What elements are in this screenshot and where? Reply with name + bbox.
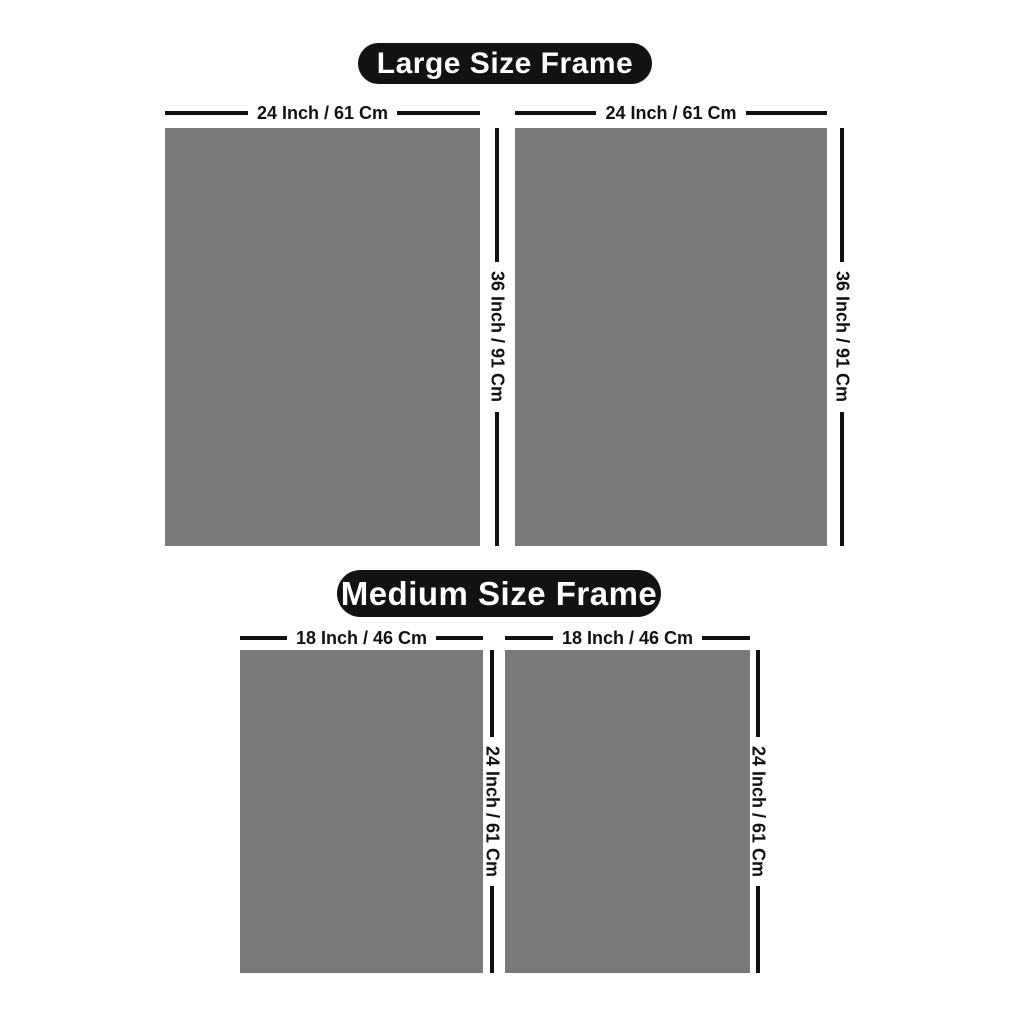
dimension-line-top <box>495 128 499 262</box>
medium-right-frame-width-label: 18 Inch / 46 Cm <box>562 628 693 649</box>
medium-right-frame-preview <box>505 650 750 973</box>
dimension-line-bottom <box>840 412 844 546</box>
dimension-line-top <box>840 128 844 262</box>
large-left-frame-width-dimension: 24 Inch / 61 Cm <box>165 101 480 125</box>
frame-size-chart: Large Size Frame 24 Inch / 61 Cm 24 Inch… <box>0 0 1024 1024</box>
dimension-line-right <box>702 636 750 640</box>
medium-left-frame-width-dimension: 18 Inch / 46 Cm <box>240 626 483 650</box>
dimension-line-left <box>515 111 596 115</box>
large-left-frame-preview <box>165 128 480 546</box>
medium-right-frame-height-label: 24 Inch / 61 Cm <box>748 746 769 877</box>
dimension-line-bottom <box>495 412 499 546</box>
large-right-frame-height-label: 36 Inch / 91 Cm <box>832 271 853 402</box>
large-left-frame-height-label: 36 Inch / 91 Cm <box>487 271 508 402</box>
large-right-frame-width-label: 24 Inch / 61 Cm <box>605 103 736 124</box>
dimension-line-left <box>505 636 553 640</box>
large-section-title-pill: Large Size Frame <box>358 43 652 84</box>
medium-right-frame-width-dimension: 18 Inch / 46 Cm <box>505 626 750 650</box>
large-section-title: Large Size Frame <box>377 47 633 81</box>
large-right-frame-width-dimension: 24 Inch / 61 Cm <box>515 101 827 125</box>
dimension-line-left <box>240 636 287 640</box>
dimension-line-top <box>490 650 494 737</box>
large-right-frame-height-dimension: 36 Inch / 91 Cm <box>829 128 855 546</box>
dimension-line-right <box>397 111 480 115</box>
dimension-line-right <box>436 636 483 640</box>
medium-left-frame-width-label: 18 Inch / 46 Cm <box>296 628 427 649</box>
medium-section-title: Medium Size Frame <box>341 575 658 613</box>
dimension-line-left <box>165 111 248 115</box>
dimension-line-top <box>756 650 760 737</box>
medium-left-frame-height-label: 24 Inch / 61 Cm <box>482 746 503 877</box>
dimension-line-bottom <box>756 886 760 973</box>
medium-section-title-pill: Medium Size Frame <box>337 570 661 617</box>
medium-left-frame-preview <box>240 650 483 973</box>
medium-left-frame-height-dimension: 24 Inch / 61 Cm <box>479 650 505 973</box>
dimension-line-bottom <box>490 886 494 973</box>
large-right-frame-preview <box>515 128 827 546</box>
large-left-frame-height-dimension: 36 Inch / 91 Cm <box>484 128 510 546</box>
dimension-line-right <box>746 111 827 115</box>
large-left-frame-width-label: 24 Inch / 61 Cm <box>257 103 388 124</box>
medium-right-frame-height-dimension: 24 Inch / 61 Cm <box>745 650 771 973</box>
